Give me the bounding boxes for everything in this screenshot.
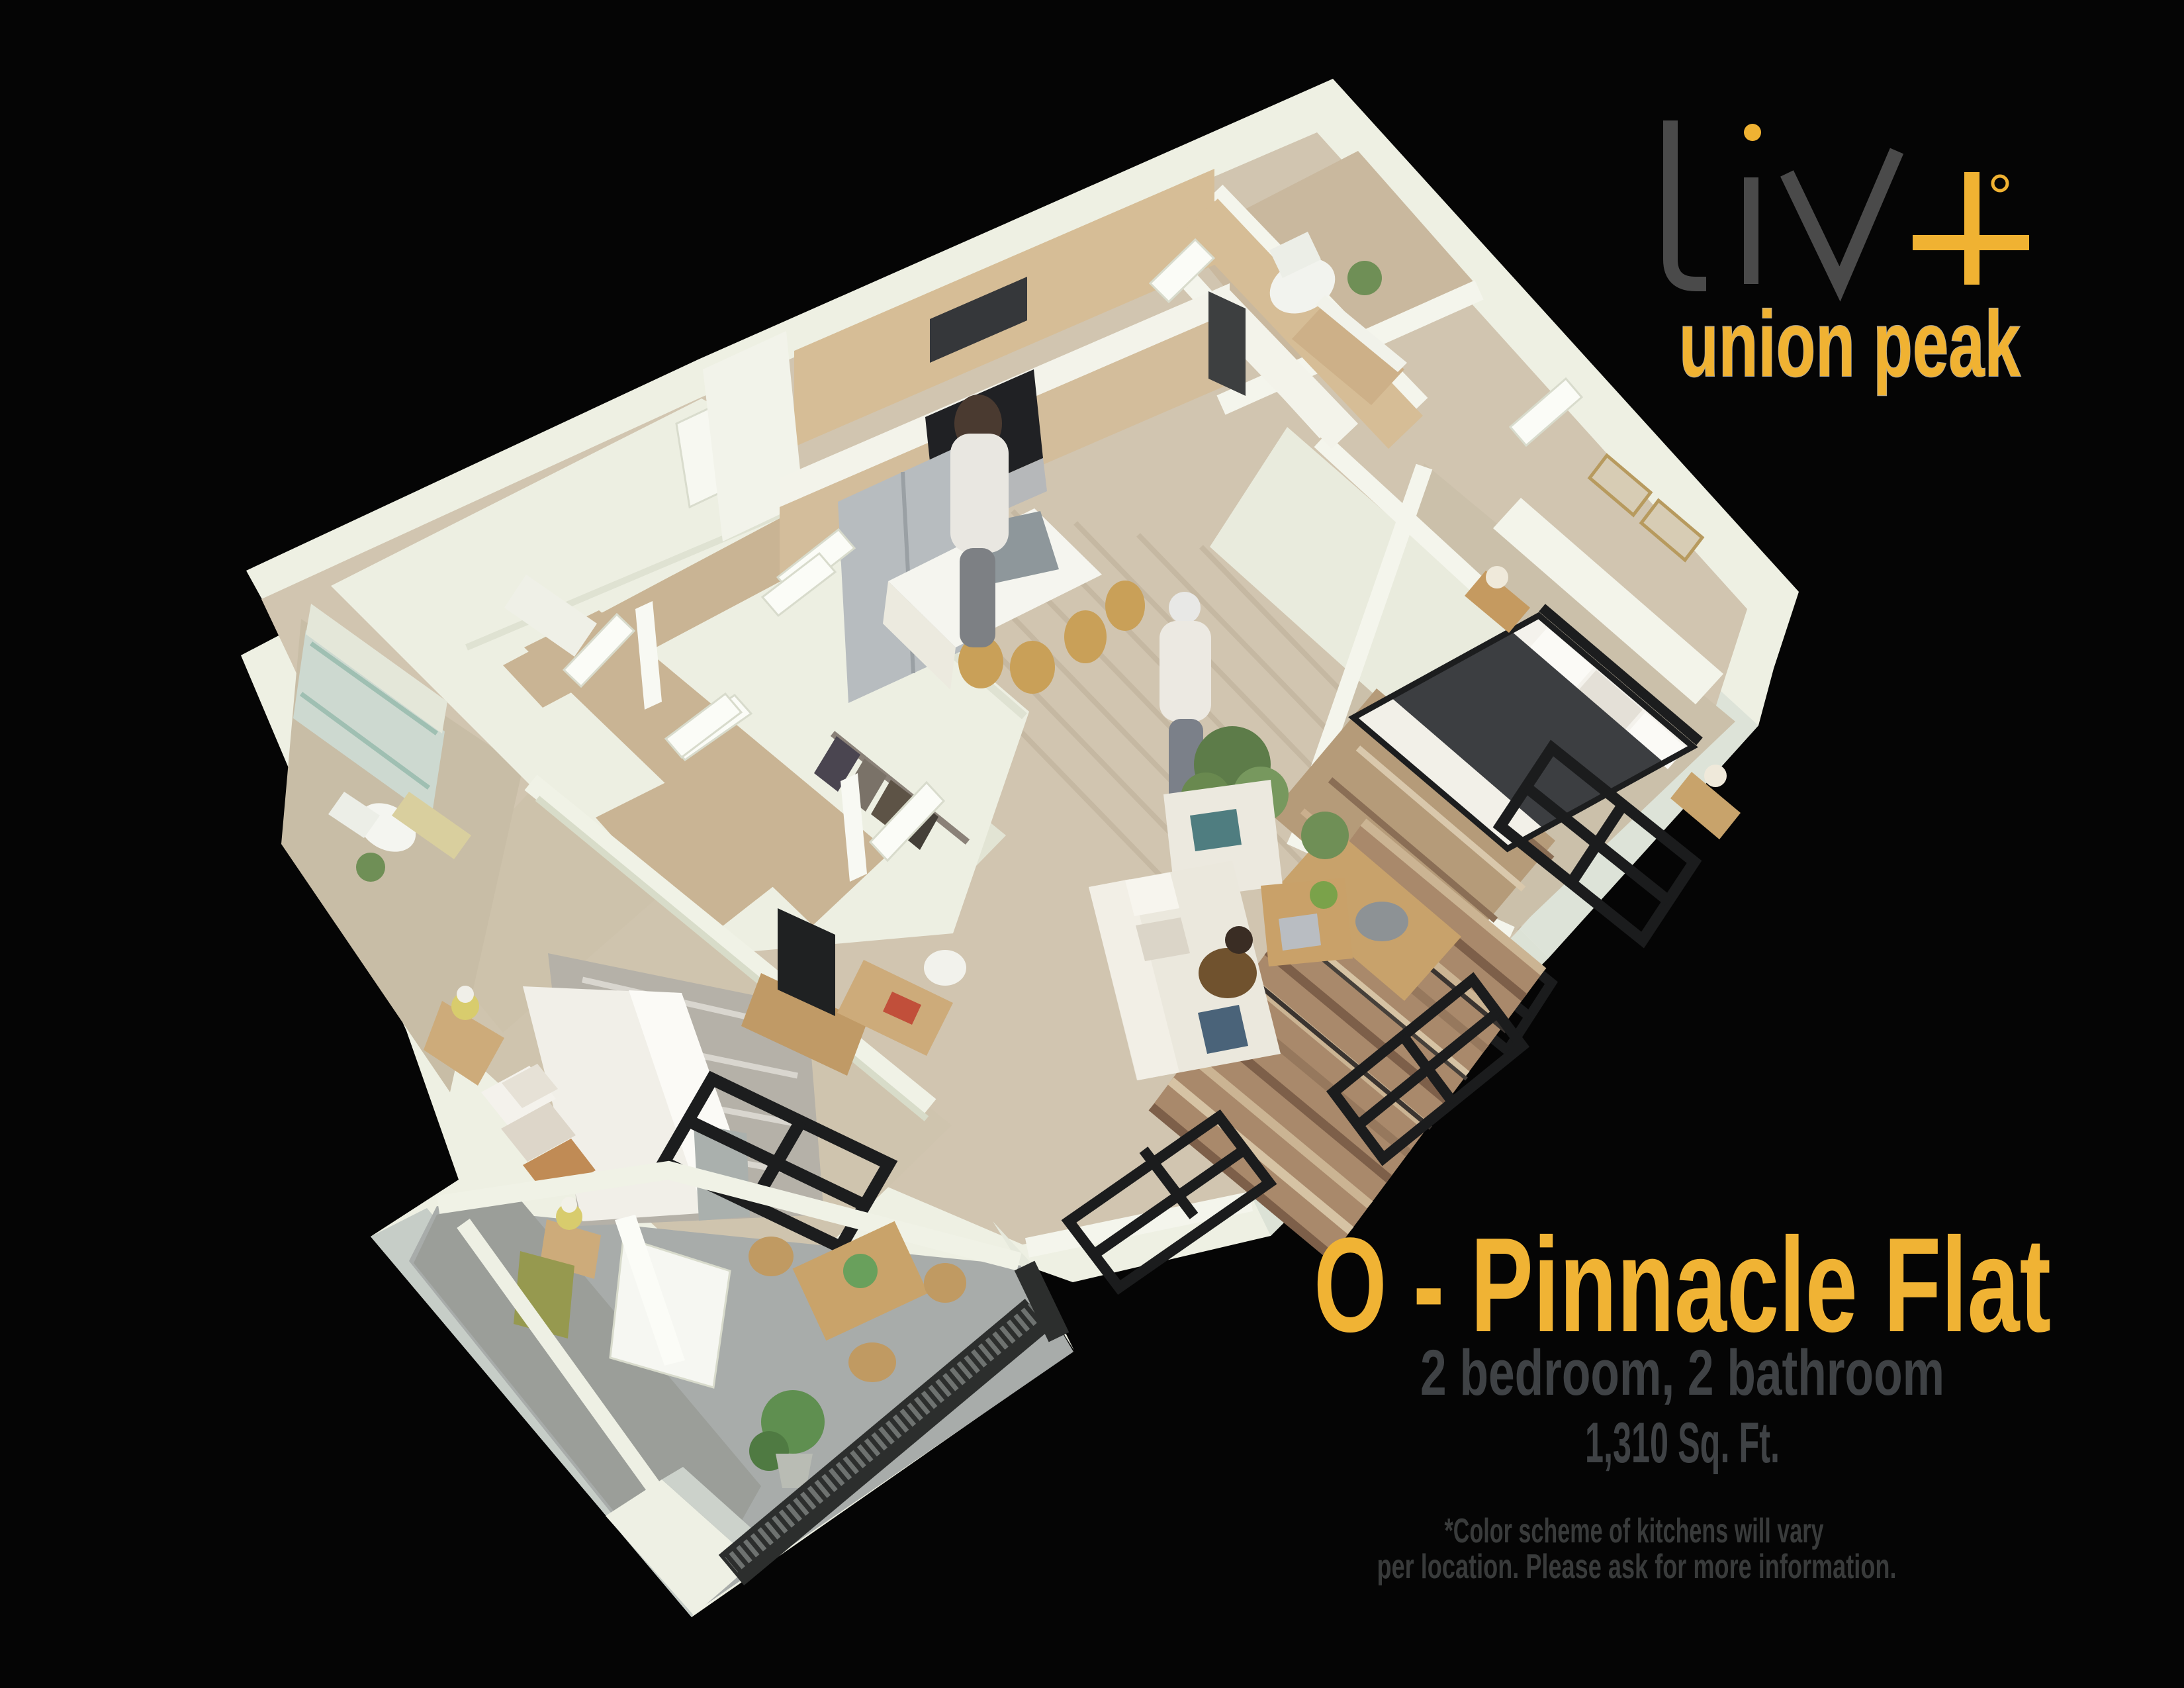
svg-text:2 bedroom, 2 bathroom: 2 bedroom, 2 bathroom xyxy=(1420,1336,1944,1409)
svg-text:1,310 Sq. Ft.: 1,310 Sq. Ft. xyxy=(1585,1411,1780,1475)
svg-text:*Color scheme of kitchens will: *Color scheme of kitchens will vary xyxy=(1445,1512,1824,1550)
svg-text:union peak: union peak xyxy=(1679,291,2021,396)
svg-text:per location. Please ask for m: per location. Please ask for more inform… xyxy=(1377,1548,1897,1586)
